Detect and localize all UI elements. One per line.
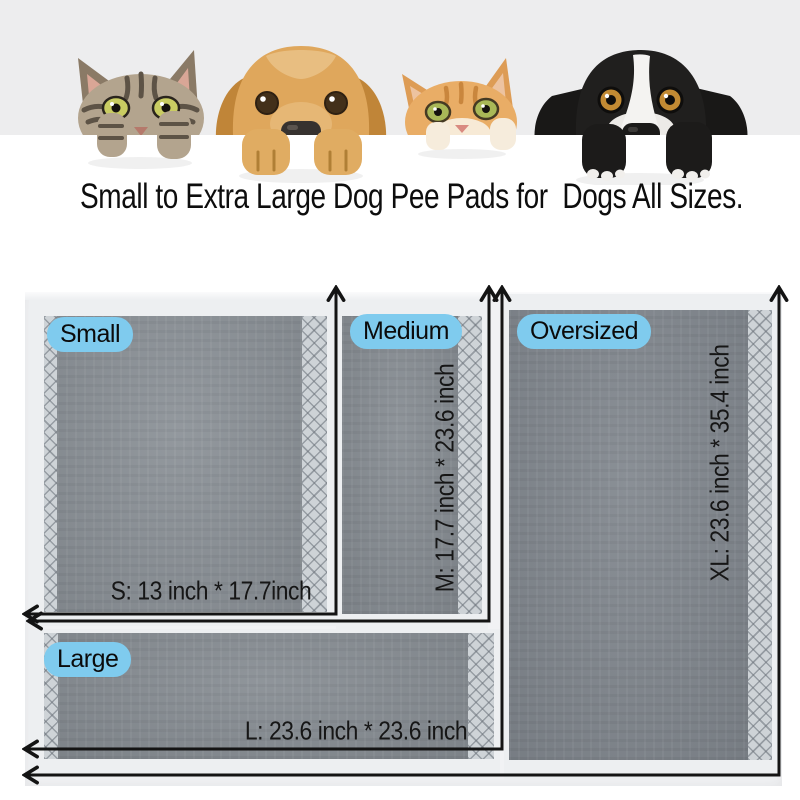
pad-medium [336,300,488,630]
dimension-text-medium: M: 17.7 inch * 23.6 inch [430,364,461,593]
page-title: Small to Extra Large Dog Pee Pads for Do… [80,177,720,217]
size-label-small: Small [47,317,133,352]
size-label-medium: Medium [350,314,462,349]
size-label-large: Large [44,642,131,677]
pad-edge-hatch-right [302,316,327,612]
animals-illustration [0,0,800,185]
pad-edge-hatch-left [44,316,57,612]
pad-oversized [504,294,777,780]
page-background: { "product_banner": { "headline": "Small… [0,0,800,800]
dimension-text-small: S: 13 inch * 17.7inch [111,576,312,607]
dimension-text-large: L: 23.6 inch * 23.6 inch [245,716,467,747]
dimension-text-oversized: XL: 23.6 inch * 35.4 inch [705,344,736,581]
pad-absorbent-area [57,316,302,612]
size-label-oversized: Oversized [517,314,651,349]
pads-sheet: Small Medium Oversized Large S: 13 inch … [25,292,782,786]
pad-edge-hatch-right [748,310,772,760]
pad-edge-hatch-right [468,633,494,759]
pad-edge-hatch-right [458,316,482,614]
